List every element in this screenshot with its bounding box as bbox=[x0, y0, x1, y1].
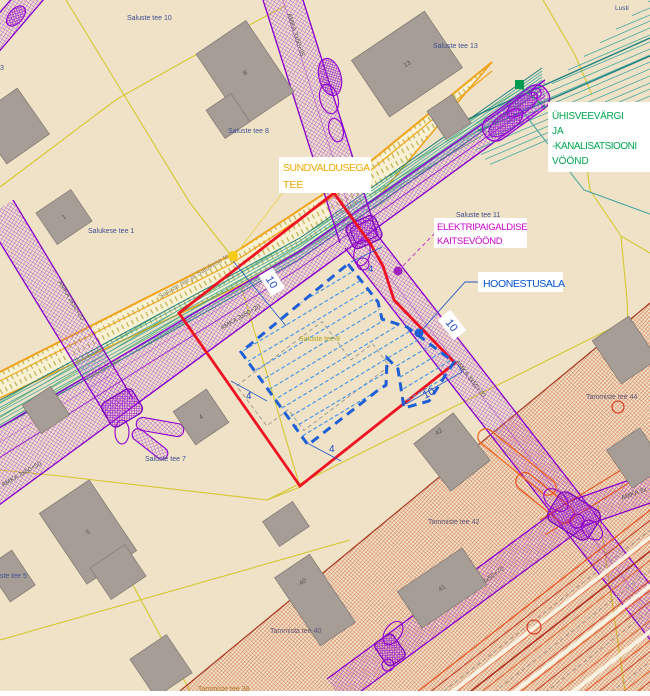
svg-text:TEE: TEE bbox=[283, 179, 303, 191]
svg-text:-KANALISATSIOONI: -KANALISATSIOONI bbox=[552, 141, 637, 152]
svg-text:ELEKTRIPAIGALDISE: ELEKTRIPAIGALDISE bbox=[437, 222, 527, 233]
svg-text:Tammiste tee 38: Tammiste tee 38 bbox=[198, 686, 249, 691]
svg-text:Tammiste tee 42: Tammiste tee 42 bbox=[428, 519, 479, 526]
svg-text:Lusti: Lusti bbox=[615, 5, 629, 12]
svg-text:Tammista tee 40: Tammista tee 40 bbox=[270, 628, 321, 635]
svg-text:4: 4 bbox=[368, 264, 373, 275]
svg-text:Saluste tee 9: Saluste tee 9 bbox=[299, 336, 340, 343]
svg-text:HOONESTUSALA: HOONESTUSALA bbox=[483, 278, 565, 290]
svg-text:Tammiste tee 44: Tammiste tee 44 bbox=[586, 394, 637, 401]
svg-text:VÖÖND: VÖÖND bbox=[552, 155, 589, 167]
svg-text:Saluste tee 8: Saluste tee 8 bbox=[228, 128, 269, 135]
svg-text:4: 4 bbox=[246, 391, 252, 402]
svg-text:JA: JA bbox=[552, 126, 564, 137]
svg-text:Saluste tee 7: Saluste tee 7 bbox=[145, 456, 186, 463]
svg-text:ÜHISVEEVÄRGI: ÜHISVEEVÄRGI bbox=[552, 110, 623, 122]
svg-text:3: 3 bbox=[0, 65, 4, 72]
svg-text:Saluste tee 11: Saluste tee 11 bbox=[456, 212, 500, 219]
svg-text:Saluste tee 10: Saluste tee 10 bbox=[127, 15, 172, 22]
svg-text:KAITSEVÖÖND: KAITSEVÖÖND bbox=[437, 236, 503, 247]
svg-text:4: 4 bbox=[329, 444, 335, 455]
svg-text:ste tee 5: ste tee 5 bbox=[0, 573, 27, 580]
svg-text:Saluste tee 13: Saluste tee 13 bbox=[433, 43, 478, 50]
svg-text:SUNDVALDUSEGA: SUNDVALDUSEGA bbox=[283, 162, 370, 174]
svg-text:Salukese tee 1: Salukese tee 1 bbox=[88, 228, 134, 235]
